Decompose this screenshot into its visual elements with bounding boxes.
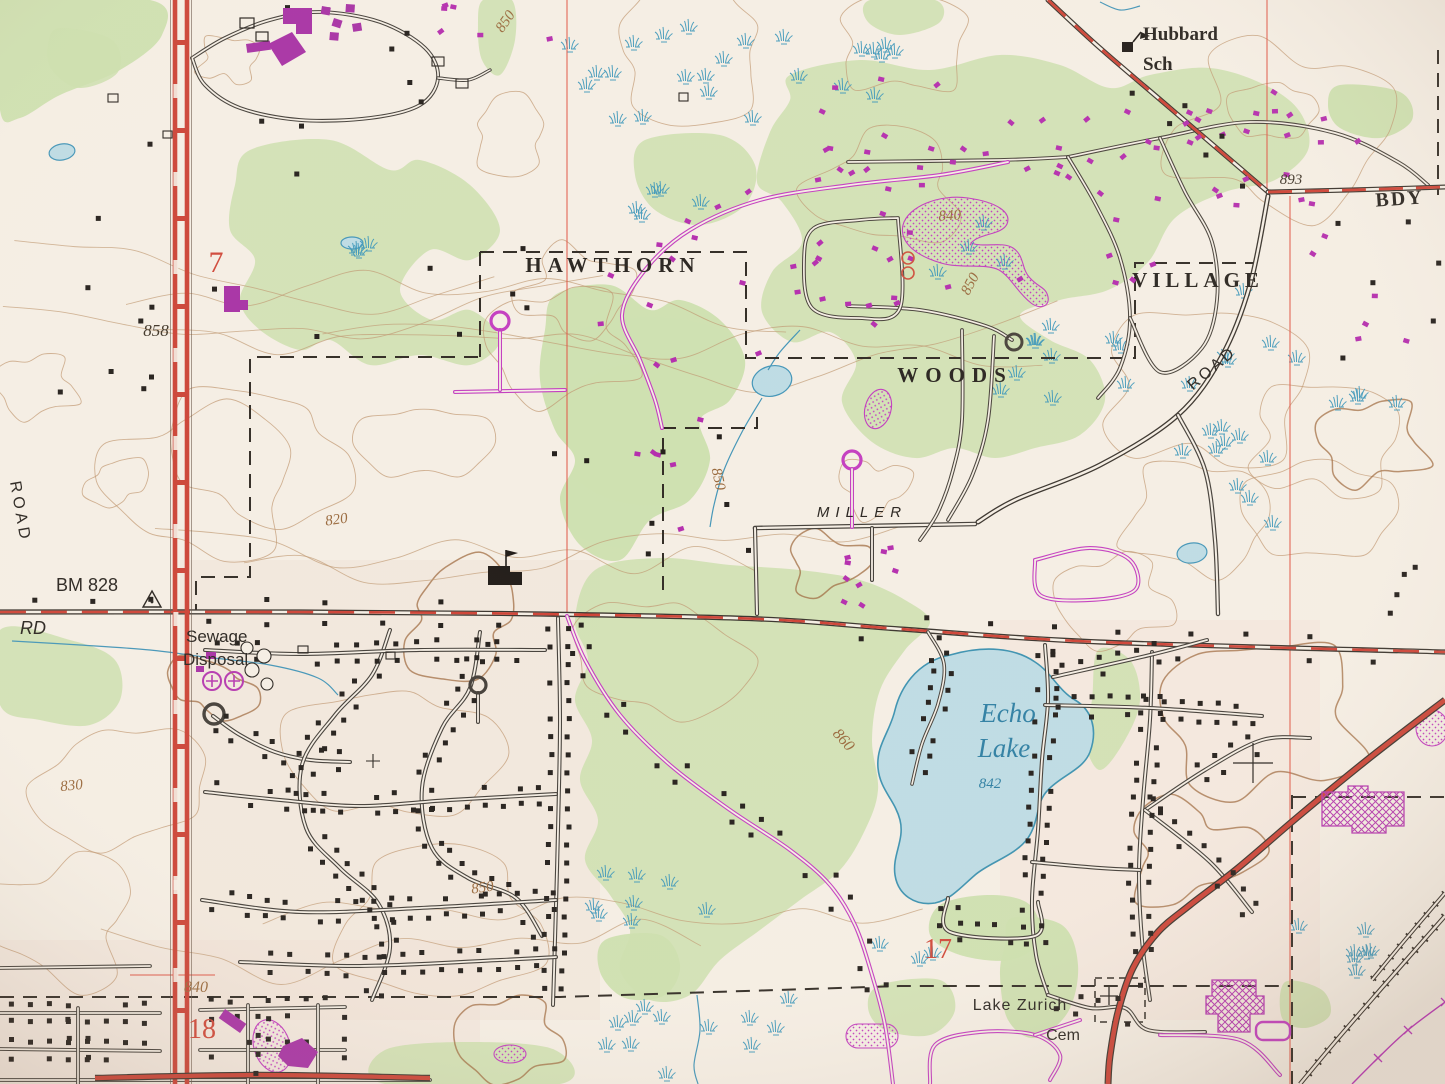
label-spot-893: 893 [1280, 172, 1303, 188]
house-black [552, 946, 557, 951]
house-black [393, 809, 398, 814]
house-black [461, 713, 466, 718]
house-black [1096, 998, 1101, 1003]
house-black [533, 946, 538, 951]
house-black [722, 791, 727, 796]
house-black [65, 1017, 70, 1022]
house-black [1125, 712, 1130, 717]
house-black [299, 765, 304, 770]
house-black [685, 763, 690, 768]
house-black [1134, 761, 1139, 766]
house-black [1180, 699, 1185, 704]
house-black [884, 982, 889, 987]
house-black [673, 780, 678, 785]
house-black [1097, 655, 1102, 660]
house-black [1179, 717, 1184, 722]
label-benchmark: BM 828 [56, 575, 118, 595]
house-black [566, 626, 571, 631]
house-black [542, 932, 547, 937]
house-black [375, 659, 380, 664]
house-black [422, 844, 427, 849]
house-black [1148, 931, 1153, 936]
house-black [498, 908, 503, 913]
house-black [341, 718, 346, 723]
house-black [342, 1015, 347, 1020]
house-black [9, 1057, 14, 1062]
house-black [1162, 699, 1167, 704]
house-black [724, 502, 729, 507]
house-black [104, 1039, 109, 1044]
house-black [564, 879, 569, 884]
house-black [380, 621, 385, 626]
house-black [510, 292, 515, 297]
house-black [336, 767, 341, 772]
house-magenta [794, 289, 801, 294]
house-black [1188, 632, 1193, 637]
house-black [1436, 261, 1441, 266]
house-black [142, 1021, 147, 1026]
house-black [1054, 686, 1059, 691]
house-black [1026, 838, 1031, 843]
house-black [423, 753, 428, 758]
house-black [1134, 778, 1139, 783]
house-black [354, 705, 359, 710]
house-black [141, 386, 146, 391]
house-black [256, 1033, 261, 1038]
house-black [374, 640, 379, 645]
house-black [32, 598, 37, 603]
house-black [342, 1055, 347, 1060]
house-black [281, 915, 286, 920]
house-black [865, 987, 870, 992]
house-black [547, 681, 552, 686]
crosshatch-building [1322, 786, 1404, 833]
house-black [311, 772, 316, 777]
house-magenta [887, 545, 894, 550]
house-black [1243, 632, 1248, 637]
house-black [956, 905, 961, 910]
house-black [1052, 624, 1057, 629]
house-black [256, 1052, 261, 1057]
house-black [426, 916, 431, 921]
house-black [47, 1018, 52, 1023]
house-black [565, 788, 570, 793]
house-black [266, 1037, 271, 1042]
house-black [545, 627, 550, 632]
house-black [859, 636, 864, 641]
house-black [254, 731, 259, 736]
house-black [623, 730, 628, 735]
house-black [1255, 752, 1260, 757]
house-black [834, 873, 839, 878]
house-black [1177, 844, 1182, 849]
label-lake-elevation: 842 [979, 776, 1002, 792]
house-magenta [1318, 140, 1324, 145]
house-black [377, 674, 382, 679]
house-black [1032, 754, 1037, 759]
house-black [1240, 912, 1245, 917]
house-black [661, 449, 666, 454]
house-black [506, 882, 511, 887]
house-black [213, 728, 218, 733]
house-black [67, 1036, 72, 1041]
label-section-17: 17 [924, 934, 952, 965]
house-black [587, 644, 592, 649]
label-contour-820: 820 [324, 510, 349, 529]
house-black [958, 921, 963, 926]
house-black [564, 861, 569, 866]
house-black [975, 922, 980, 927]
house-black [308, 846, 313, 851]
house-black [437, 757, 442, 762]
house-black [245, 913, 250, 918]
house-black [501, 804, 506, 809]
house-black [931, 669, 936, 674]
house-black [549, 752, 554, 757]
house-black [1250, 721, 1255, 726]
house-magenta [441, 6, 447, 11]
house-black [937, 923, 942, 928]
house-black [1054, 696, 1059, 701]
house-black [123, 1002, 128, 1007]
house-black [1196, 720, 1201, 725]
house-black [521, 246, 526, 251]
house-black [1045, 823, 1050, 828]
house-magenta [598, 321, 604, 326]
house-black [562, 933, 567, 938]
house-black [255, 640, 260, 645]
label-echo-line1: Echo [979, 698, 1035, 728]
house-black [345, 861, 350, 866]
house-black [544, 896, 549, 901]
house-black [104, 1019, 109, 1024]
house-black [28, 1002, 33, 1007]
house-black [443, 740, 448, 745]
house-magenta [1272, 109, 1278, 114]
house-black [514, 658, 519, 663]
house-black [9, 1018, 14, 1023]
house-black [533, 889, 538, 894]
house-black [28, 1019, 33, 1024]
house-black [354, 642, 359, 647]
house-black [579, 623, 584, 628]
house-black [1138, 727, 1143, 732]
house-black [604, 713, 609, 718]
house-black [346, 886, 351, 891]
house-black [858, 966, 863, 971]
house-black [1008, 940, 1013, 945]
house-black [284, 807, 289, 812]
house-black [374, 924, 379, 929]
house-black [1340, 356, 1345, 361]
house-black [1147, 864, 1152, 869]
house-black [322, 746, 327, 751]
label-contour-850-southwest: 850 [470, 878, 495, 897]
house-black [212, 287, 217, 292]
house-black [1125, 1022, 1130, 1027]
house-black [264, 622, 269, 627]
house-black [436, 861, 441, 866]
house-black [1204, 777, 1209, 782]
house-black [96, 216, 101, 221]
house-black [559, 968, 564, 973]
house-black [1148, 847, 1153, 852]
house-black [149, 305, 154, 310]
house-magenta [1153, 145, 1160, 150]
house-black [248, 803, 253, 808]
house-black [58, 390, 63, 395]
house-black [1149, 947, 1154, 952]
house-black [85, 1020, 90, 1025]
house-black [945, 688, 950, 693]
house-black [1029, 771, 1034, 776]
house-black [85, 285, 90, 290]
house-black [338, 810, 343, 815]
house-black [1054, 669, 1059, 674]
house-black [1307, 634, 1312, 639]
house-black [447, 848, 452, 853]
house-black [318, 919, 323, 924]
house-black [287, 952, 292, 957]
house-black [1043, 940, 1048, 945]
house-black [1150, 813, 1155, 818]
house-black [297, 751, 302, 756]
house-black [382, 954, 387, 959]
house-black [1138, 983, 1143, 988]
house-black [1078, 659, 1083, 664]
house-black [1148, 795, 1153, 800]
house-black [209, 907, 214, 912]
house-black [1240, 184, 1245, 189]
house-black [992, 922, 997, 927]
house-black [419, 950, 424, 955]
house-black [957, 937, 962, 942]
house-black [1051, 738, 1056, 743]
house-black [1020, 908, 1025, 913]
house-black [1129, 812, 1134, 817]
house-magenta [950, 160, 956, 165]
house-black [229, 890, 234, 895]
hubbard-school-building [1122, 42, 1133, 52]
house-black [320, 860, 325, 865]
house-black [988, 621, 993, 626]
house-black [263, 913, 268, 918]
house-black [290, 773, 295, 778]
house-black [405, 31, 410, 36]
house-black [1073, 1012, 1078, 1017]
house-black [1228, 743, 1233, 748]
house-black [47, 1039, 52, 1044]
house-black [416, 827, 421, 832]
house-black [1187, 831, 1192, 836]
house-black [566, 752, 571, 757]
house-black [304, 996, 309, 1001]
house-black [565, 806, 570, 811]
house-black [551, 890, 556, 895]
house-black [322, 834, 327, 839]
house-black [372, 916, 377, 921]
house-black [363, 955, 368, 960]
house-black [1089, 715, 1094, 720]
house-black [1253, 901, 1258, 906]
house-black [302, 808, 307, 813]
label-contour-830: 830 [60, 777, 85, 795]
house-black [407, 896, 412, 901]
house-black [1198, 701, 1203, 706]
house-black [387, 902, 392, 907]
house-black [1028, 822, 1033, 827]
house-black [314, 334, 319, 339]
label-contour-840-north: 840 [938, 207, 962, 224]
house-black [548, 717, 553, 722]
house-black [268, 970, 273, 975]
house-black [360, 898, 365, 903]
house-black [1116, 996, 1121, 1001]
house-black [451, 727, 456, 732]
house-black [104, 1057, 109, 1062]
house-black [480, 912, 485, 917]
house-black [286, 788, 291, 793]
house-black [1167, 121, 1172, 126]
house-black [1231, 870, 1236, 875]
house-black [1158, 711, 1163, 716]
house-black [1108, 693, 1113, 698]
house-black [1394, 592, 1399, 597]
house-black [848, 895, 853, 900]
house-black [1172, 819, 1177, 824]
house-black [367, 908, 372, 913]
house-black [342, 1037, 347, 1042]
house-black [1371, 660, 1376, 665]
house-black [109, 369, 114, 374]
house-magenta [919, 183, 925, 188]
label-miller: MILLER [817, 504, 907, 521]
house-black [228, 1000, 233, 1005]
house-magenta [845, 301, 851, 306]
house-black [524, 305, 529, 310]
house-black [355, 659, 360, 664]
house-black [548, 645, 553, 650]
house-black [268, 951, 273, 956]
house-black [1130, 91, 1135, 96]
house-black [1245, 734, 1250, 739]
house-black [334, 848, 339, 853]
house-black [401, 970, 406, 975]
house-black [270, 739, 275, 744]
label-village: VILLAGE [1132, 268, 1264, 292]
house-black [322, 621, 327, 626]
house-black [1128, 846, 1133, 851]
house-black [1216, 701, 1221, 706]
house-black [457, 948, 462, 953]
house-magenta [891, 295, 897, 300]
house-black [414, 639, 419, 644]
house-black [829, 907, 834, 912]
house-magenta [907, 230, 913, 235]
house-black [325, 971, 330, 976]
house-black [320, 809, 325, 814]
house-black [655, 763, 660, 768]
house-black [1146, 914, 1151, 919]
house-black [438, 623, 443, 628]
house-black [717, 434, 722, 439]
house-black [266, 998, 271, 1003]
house-black [531, 935, 536, 940]
house-black [224, 714, 229, 719]
house-black [929, 658, 934, 663]
house-black [910, 749, 915, 754]
house-black [1402, 572, 1407, 577]
house-black [552, 907, 557, 912]
house-black [1216, 858, 1221, 863]
house-black [570, 651, 575, 656]
house-black [938, 906, 943, 911]
house-black [759, 817, 764, 822]
house-black [515, 965, 520, 970]
house-black [474, 637, 479, 642]
house-black [393, 641, 398, 646]
house-black [262, 754, 267, 759]
house-black [931, 738, 936, 743]
house-black [462, 914, 467, 919]
house-black [400, 952, 405, 957]
label-sewage-line2: Disposal [183, 650, 248, 669]
house-black [228, 738, 233, 743]
house-black [559, 986, 564, 991]
house-magenta [832, 85, 838, 90]
house-black [546, 914, 551, 919]
house-black [448, 875, 453, 880]
house-black [480, 659, 485, 664]
house-black [408, 916, 413, 921]
house-black [472, 698, 477, 703]
house-black [335, 659, 340, 664]
house-black [416, 808, 421, 813]
house-black [1215, 884, 1220, 889]
house-black [1148, 830, 1153, 835]
house-black [90, 599, 95, 604]
house-black [344, 953, 349, 958]
house-black [944, 651, 949, 656]
house-black [434, 657, 439, 662]
house-black [927, 754, 932, 759]
house-black [285, 996, 290, 1001]
house-black [337, 749, 342, 754]
house-black [428, 266, 433, 271]
house-black [1138, 710, 1143, 715]
label-cemetery-line2: Cem [1046, 1027, 1080, 1044]
house-magenta [1372, 294, 1378, 299]
house-black [28, 1040, 33, 1045]
house-black [47, 1056, 52, 1061]
label-sewage-line1: Sewage [186, 627, 247, 646]
house-black [66, 1003, 71, 1008]
house-black [565, 734, 570, 739]
house-black [1024, 942, 1029, 947]
house-magenta [634, 451, 641, 456]
house-black [123, 1040, 128, 1045]
house-black [546, 842, 551, 847]
house-black [322, 600, 327, 605]
house-black [803, 873, 808, 878]
house-black [1101, 672, 1106, 677]
house-black [1072, 694, 1077, 699]
house-black [1134, 648, 1139, 653]
house-black [1090, 694, 1095, 699]
house-black [1115, 651, 1120, 656]
house-black [1023, 872, 1028, 877]
house-black [454, 658, 459, 663]
